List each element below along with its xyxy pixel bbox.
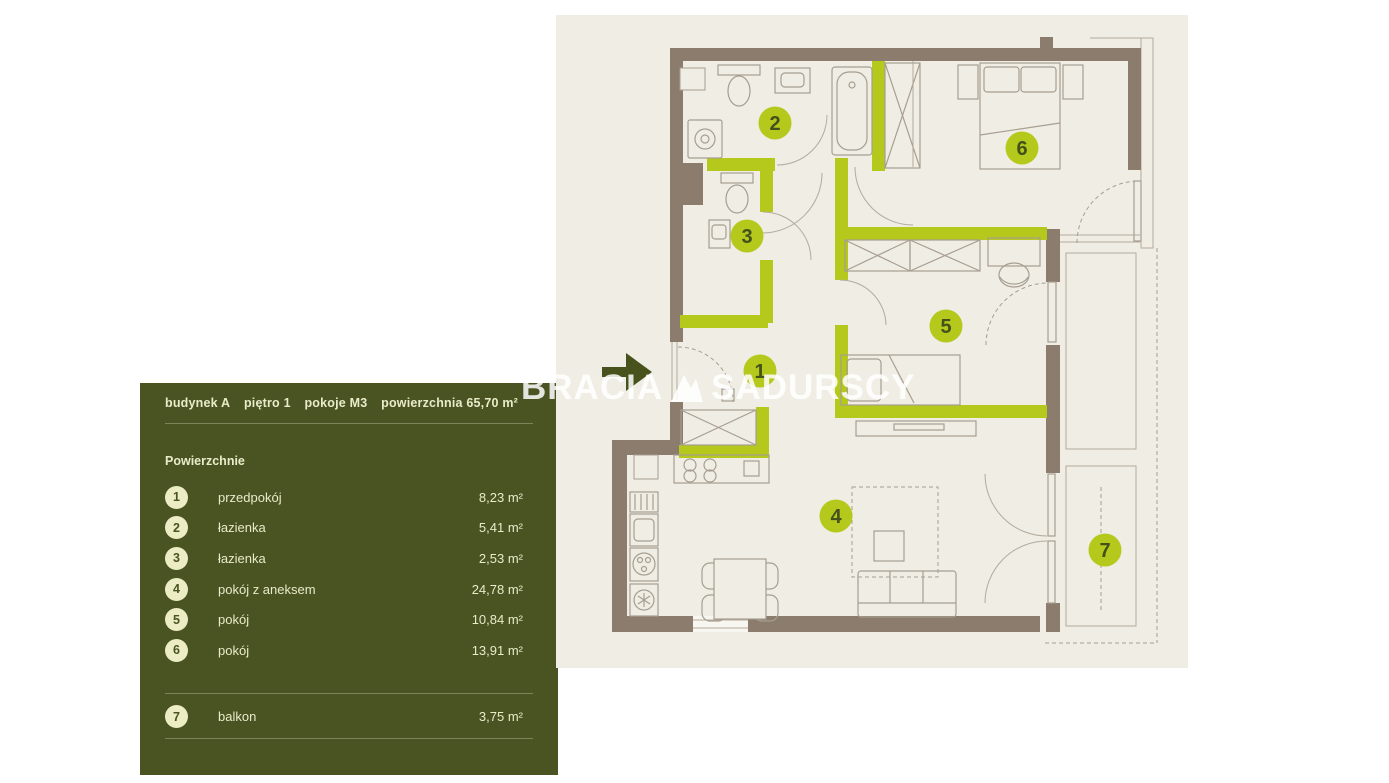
room-row-3: 3 łazienka 2,53 m² [140,543,558,574]
room-number-badge: 3 [165,547,188,570]
balcony-divider [165,693,533,694]
svg-text:4: 4 [830,506,842,528]
apartment-info-panel: budynek A piętro 1 pokoje M3 powierzchni… [140,383,558,775]
room-row-1: 1 przedpokój 8,23 m² [140,482,558,513]
room-name: przedpokój [218,490,282,505]
dining-set [702,559,778,621]
room-markers: 1 2 3 4 5 6 7 [731,107,1122,567]
room-area: 13,91 m² [472,643,523,658]
room-name: łazienka [218,551,266,566]
room-number-badge: 2 [165,516,188,539]
room-area: 2,53 m² [479,551,523,566]
room-marker-7: 7 [1089,534,1122,567]
total-area-label: powierzchnia 65,70 m² [381,396,518,410]
room-number-badge: 5 [165,608,188,631]
room-marker-5: 5 [930,310,963,343]
header-divider [165,423,533,424]
svg-text:7: 7 [1099,540,1110,562]
room-marker-4: 4 [820,500,853,533]
room-name: łazienka [218,520,266,535]
building-label: budynek A [165,396,230,410]
living-room-furniture [852,421,976,617]
floor-plan: 1 2 3 4 5 6 7 [556,15,1188,668]
apartment-header: budynek A piętro 1 pokoje M3 powierzchni… [140,383,558,410]
room-list: 1 przedpokój 8,23 m² 2 łazienka 5,41 m² … [140,482,558,666]
room-row-4: 4 pokój z aneksem 24,78 m² [140,574,558,605]
room-marker-2: 2 [759,107,792,140]
room-marker-6: 6 [1006,132,1039,165]
room-name: pokój z aneksem [218,582,316,597]
svg-text:6: 6 [1016,138,1027,160]
room-number-badge: 6 [165,639,188,662]
floor-label: piętro 1 [244,396,291,410]
room-area: 10,84 m² [472,612,523,627]
entry-door [672,342,734,402]
room-area: 24,78 m² [472,582,523,597]
room-row-2: 2 łazienka 5,41 m² [140,513,558,544]
hall-wardrobe [885,63,920,168]
hall-closet [681,410,756,445]
wall-shafts [634,68,705,479]
room-name: balkon [218,709,256,724]
svg-text:5: 5 [940,316,951,338]
room-name: pokój [218,643,249,658]
areas-section-title: Powierzchnie [165,454,558,468]
svg-text:1: 1 [754,361,765,383]
room-marker-3: 3 [731,220,764,253]
rooms-type-label: pokoje M3 [304,396,367,410]
room-marker-1: 1 [744,355,777,388]
room-area: 3,75 m² [479,709,523,724]
balcony-double-doors [985,474,1055,603]
room-number-badge: 1 [165,486,188,509]
svg-text:2: 2 [769,113,780,135]
room-number-badge: 7 [165,705,188,728]
room-row-7: 7 balkon 3,75 m² [140,698,558,736]
room-area: 8,23 m² [479,490,523,505]
room-row-5: 5 pokój 10,84 m² [140,604,558,635]
room-row-6: 6 pokój 13,91 m² [140,635,558,666]
room-area: 5,41 m² [479,520,523,535]
room-name: pokój [218,612,249,627]
room-number-badge: 4 [165,578,188,601]
svg-text:3: 3 [741,226,752,248]
bottom-divider [165,738,533,739]
entry-arrow-icon [602,353,652,391]
